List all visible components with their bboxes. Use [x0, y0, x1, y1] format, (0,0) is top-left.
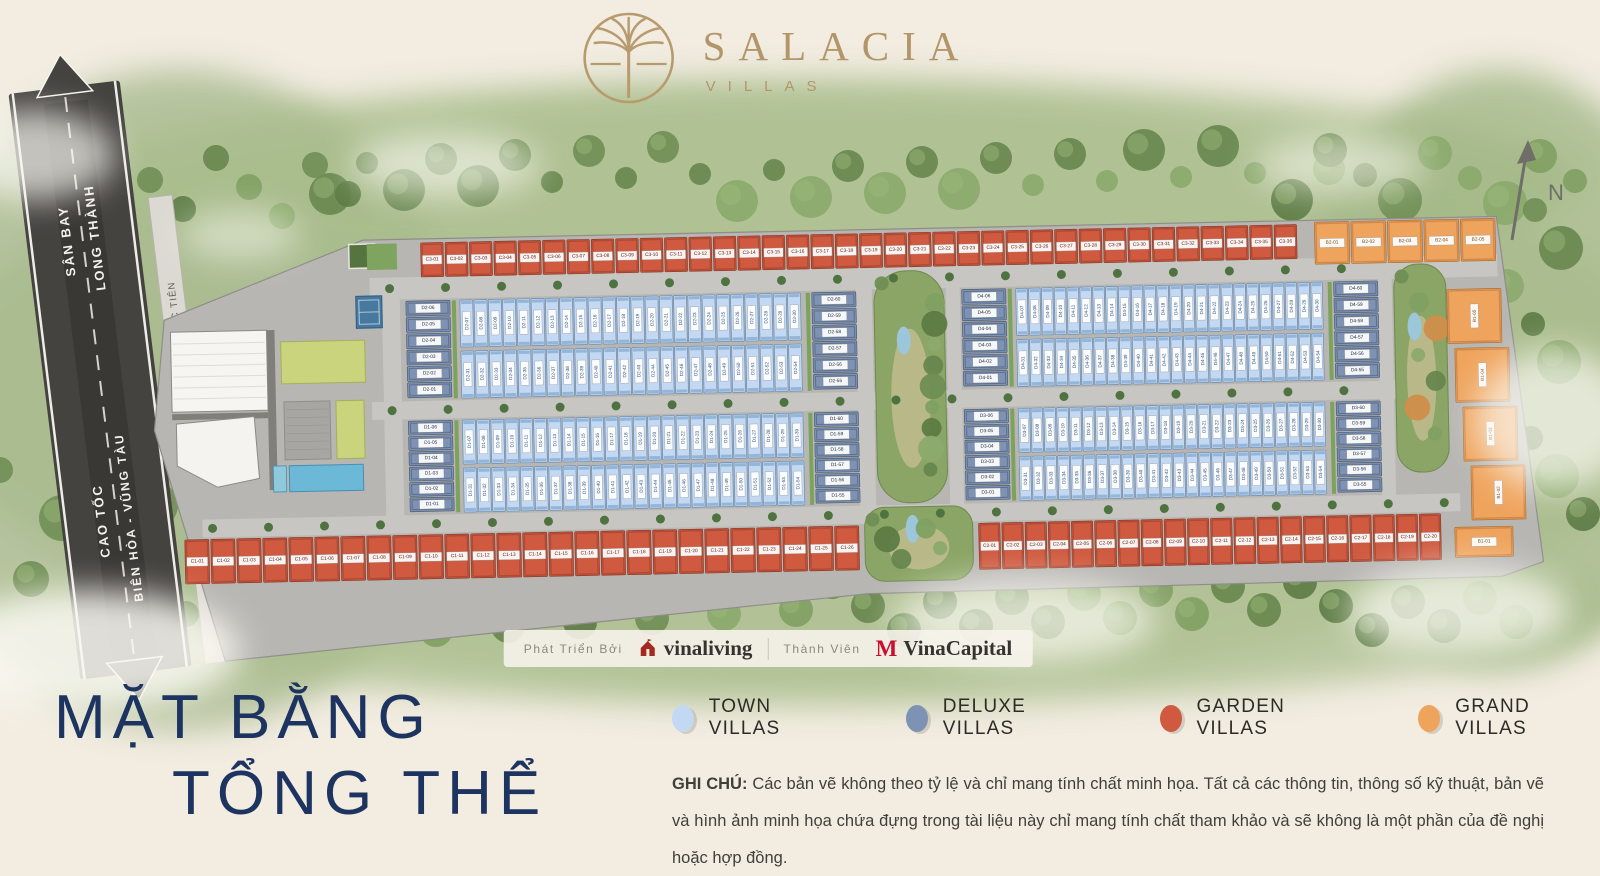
plot-D3-40: D3-40: [1135, 454, 1147, 498]
plot-label: B2-05: [1472, 236, 1485, 242]
tree: [302, 152, 328, 178]
plot-label: D1-07: [467, 435, 472, 448]
plot-label: D3-13: [1099, 422, 1104, 435]
plot-D4-05: D4-05: [962, 305, 1006, 321]
plot-label: D1-50: [738, 478, 743, 491]
map-shape: [1186, 406, 1195, 409]
map-shape: [522, 507, 533, 510]
plot-label: C2-07: [1122, 540, 1136, 546]
plot-D3-51: D3-51: [1276, 451, 1288, 495]
plot-D3-60: D3-60: [1336, 401, 1380, 416]
plot-label: D4-48: [1238, 352, 1243, 365]
plot-C1-25: C1-25: [809, 526, 834, 570]
plot-label: D4-08: [1032, 305, 1037, 318]
plot-D2-13: D2-13: [545, 298, 559, 345]
plot-D4-25: D4-25: [1247, 283, 1259, 330]
plot-label: D2-29: [778, 310, 783, 323]
plot-label: D4-44: [1187, 353, 1192, 366]
plot-label: D1-06: [424, 424, 438, 430]
map-shape: [575, 299, 586, 302]
plot-C3-33: C3-33: [1201, 226, 1224, 260]
brand-header: SALACIA VILLAS: [581, 10, 972, 106]
plot-label: D1-57: [831, 462, 845, 468]
plot-label: D1-46: [681, 479, 686, 492]
plot-D3-24: D3-24: [1236, 404, 1248, 448]
legend-item-town: TOWN VILLAS: [672, 696, 842, 740]
plot-D1-49: D1-49: [720, 462, 734, 506]
plot-label: D2-10: [507, 316, 512, 329]
plot-label: D3-01: [981, 489, 995, 495]
plot-label: C3-15: [767, 249, 781, 255]
map-shape: [533, 341, 544, 344]
map-shape: [1264, 452, 1273, 455]
plot-D1-50: D1-50: [734, 462, 748, 506]
map-shape: [475, 301, 486, 304]
map-shape: [591, 391, 602, 394]
map-shape: [1225, 405, 1234, 408]
member-label: Thành Viên: [783, 642, 860, 656]
plot-D4-42: D4-42: [1158, 336, 1170, 383]
plot-label: B2-01: [1326, 240, 1339, 246]
plot-label: D1-30: [794, 428, 799, 441]
map-shape: [1056, 339, 1065, 342]
map-shape: [706, 455, 717, 458]
map-shape: [1213, 444, 1222, 447]
map-shape: [1249, 326, 1258, 329]
map-shape: [633, 348, 644, 351]
plot-label: D1-15: [581, 433, 586, 446]
plot-D2-35: D2-35: [518, 350, 532, 397]
map-shape: [479, 469, 490, 472]
plot-label: C1-08: [373, 555, 387, 561]
plot-label: D3-33: [1048, 471, 1053, 484]
tree: [763, 159, 785, 181]
plot-C2-04: C2-04: [1048, 521, 1070, 567]
plot-C3-20: C3-20: [884, 233, 907, 267]
map-shape: [1120, 329, 1129, 332]
plot-C3-14: C3-14: [738, 236, 761, 270]
plot-label: D1-03: [425, 470, 439, 476]
map-shape: [550, 467, 561, 470]
plot-label: D2-38: [565, 366, 570, 379]
map-shape: [1071, 408, 1080, 411]
plot-label: D4-38: [1110, 354, 1115, 367]
map-shape: [1072, 456, 1081, 459]
plot-label: C1-02: [217, 558, 231, 564]
map-shape: [1030, 331, 1039, 334]
plot-label: C1-25: [815, 545, 829, 551]
plot-D4-43: D4-43: [1171, 336, 1183, 383]
tree: [137, 167, 163, 193]
plot-C3-08: C3-08: [591, 239, 614, 273]
map-shape: [747, 346, 758, 349]
plot-C3-30: C3-30: [1128, 228, 1151, 262]
map-shape: [1042, 289, 1051, 292]
plot-C1-18: C1-18: [627, 530, 652, 574]
plot-label: D2-25: [721, 311, 726, 324]
plot-label: D3-43: [1177, 468, 1182, 481]
plot-D1-32: D1-32: [478, 468, 492, 512]
plot-label: D1-44: [653, 479, 658, 492]
plot-label: C3-34: [1230, 240, 1244, 246]
map-shape: [732, 337, 743, 340]
plot-label: D2-46: [679, 363, 684, 376]
plot-label: C3-06: [547, 254, 561, 260]
map-shape: [1261, 326, 1270, 329]
map-shape: [621, 466, 632, 469]
map-shape: [1250, 404, 1259, 407]
plot-label: D1-16: [595, 433, 600, 446]
plot-label: D3-47: [1228, 467, 1233, 480]
plot-D3-41: D3-41: [1148, 454, 1160, 498]
map-shape: [690, 347, 701, 350]
map-shape: [676, 347, 687, 350]
map-shape: [1160, 406, 1169, 409]
plot-label: D4-58: [1350, 318, 1364, 324]
plot-D2-56: D2-56: [813, 357, 857, 373]
plot-D3-18: D3-18: [1159, 405, 1171, 449]
plot-label: D1-48: [710, 478, 715, 491]
map-shape: [761, 346, 772, 349]
map-shape: [1161, 445, 1170, 448]
plot-label: C3-26: [1035, 244, 1049, 250]
plot-C3-21: C3-21: [908, 232, 931, 266]
plot-label: D3-41: [1151, 469, 1156, 482]
plot-D1-59: D1-59: [815, 427, 859, 442]
map-shape: [1119, 287, 1128, 290]
plot-C1-11: C1-11: [445, 534, 470, 578]
plot-D4-24: D4-24: [1234, 284, 1246, 331]
plot-D1-53: D1-53: [777, 461, 791, 505]
plot-C3-18: C3-18: [835, 234, 858, 268]
map-shape: [1046, 457, 1055, 460]
map-shape: [722, 502, 733, 505]
plot-D4-38: D4-38: [1107, 337, 1119, 384]
map-shape: [607, 466, 618, 469]
plot-label: D3-60: [1352, 405, 1366, 411]
plot-label: D1-12: [538, 434, 543, 447]
plot-label: D4-37: [1097, 355, 1102, 368]
plot-label: D1-27: [752, 429, 757, 442]
plot-label: C3-35: [1255, 239, 1269, 245]
plot-C3-26: C3-26: [1030, 230, 1053, 264]
map-shape: [1085, 495, 1094, 498]
map-shape: [1249, 335, 1258, 338]
brand-text: SALACIA VILLAS: [703, 22, 972, 95]
map-shape: [706, 416, 717, 419]
plot-label: D3-55: [1353, 482, 1367, 488]
map-shape: [1019, 409, 1028, 412]
map-shape: [546, 299, 557, 302]
plot-C2-03: C2-03: [1025, 522, 1047, 568]
plot-label: D1-20: [652, 431, 657, 444]
plot-label: C3-27: [1060, 243, 1074, 249]
plot-B2-05: B2-05: [1460, 218, 1495, 261]
map-shape: [562, 350, 573, 353]
plot-label: C2-19: [1401, 534, 1415, 540]
plot-D1-47: D1-47: [691, 463, 705, 507]
map-shape: [721, 454, 732, 457]
plot-label: C2-17: [1354, 535, 1368, 541]
plot-C1-07: C1-07: [341, 536, 366, 580]
page-title: MẶT BẰNG TỔNG THỂ: [54, 680, 547, 831]
plot-label: C3-05: [523, 254, 537, 260]
map-shape: [479, 508, 490, 511]
map-shape: [1303, 490, 1312, 493]
plot-D4-56: D4-56: [1335, 346, 1379, 362]
plot-D4-17: D4-17: [1144, 286, 1156, 333]
map-shape: [1184, 328, 1193, 331]
map-shape: [603, 298, 614, 301]
plot-D2-10: D2-10: [503, 299, 517, 346]
plot-D2-44: D2-44: [646, 347, 660, 394]
plot-D4-39: D4-39: [1119, 337, 1131, 384]
plot-D2-21: D2-21: [659, 296, 673, 343]
plot-label: C1-15: [555, 551, 569, 557]
deluxe-swatch: [906, 705, 928, 732]
plot-label: D2-58: [828, 329, 842, 335]
plot-label: D1-26: [737, 430, 742, 443]
map-shape: [465, 508, 476, 511]
plot-D2-04: D2-04: [407, 333, 451, 349]
plot-label: D1-49: [724, 478, 729, 491]
plot-D3-06: D3-06: [964, 409, 1008, 424]
plot-C3-34: C3-34: [1225, 226, 1248, 260]
map-shape: [1068, 288, 1077, 291]
plot-label: C3-22: [938, 246, 952, 252]
map-shape: [703, 296, 714, 299]
plot-label: C3-02: [450, 256, 464, 262]
map-shape: [1020, 457, 1029, 460]
plot-label: B1-05: [1472, 309, 1477, 322]
plot-D3-02: D3-02: [966, 470, 1010, 485]
map-shape: [606, 418, 617, 421]
plot-label: D3-37: [1100, 470, 1105, 483]
plot-C1-26: C1-26: [835, 526, 860, 570]
map-shape: [1018, 331, 1027, 334]
plot-label: D3-28: [1291, 418, 1296, 431]
plot-label: C2-16: [1331, 535, 1345, 541]
map-shape: [550, 458, 561, 461]
plot-D4-41: D4-41: [1145, 337, 1157, 384]
map-shape: [1210, 327, 1219, 330]
plot-label: D4-45: [1200, 352, 1205, 365]
plot-D1-17: D1-17: [605, 417, 619, 461]
plot-D4-15: D4-15: [1118, 286, 1130, 333]
map-shape: [1055, 288, 1064, 291]
plot-label: D4-01: [979, 375, 993, 381]
plot-label: B1-01: [1478, 538, 1491, 544]
plot-D1-10: D1-10: [505, 419, 519, 463]
map-shape: [589, 298, 600, 301]
map-shape: [1071, 447, 1080, 450]
plot-D4-23: D4-23: [1221, 284, 1233, 331]
cloud: [350, 133, 540, 197]
plot-D1-54: D1-54: [791, 461, 805, 505]
map-shape: [1107, 329, 1116, 332]
plot-label: D4-41: [1149, 353, 1154, 366]
map-shape: [520, 420, 531, 423]
map-shape: [494, 507, 505, 510]
map-shape: [1098, 495, 1107, 498]
plot-D3-12: D3-12: [1082, 407, 1094, 451]
plot-label: D3-19: [1176, 420, 1181, 433]
plot-label: C3-01: [426, 256, 440, 262]
plot-D1-41: D1-41: [606, 465, 620, 509]
map-shape: [1032, 409, 1041, 412]
plot-label: D3-21: [1201, 420, 1206, 433]
map-shape: [635, 456, 646, 459]
map-shape: [547, 341, 558, 344]
map-shape: [1161, 454, 1170, 457]
legend-label: TOWN VILLAS: [709, 696, 842, 740]
map-shape: [678, 464, 689, 467]
plot-B1-05: B1-05: [1447, 288, 1502, 343]
plot-label: C1-05: [295, 556, 309, 562]
plot-D2-60: D2-60: [812, 292, 856, 308]
plot-D1-22: D1-22: [676, 415, 690, 459]
plot-label: D4-23: [1225, 301, 1230, 314]
plot-label: D3-25: [1253, 419, 1258, 432]
plot-C2-09: C2-09: [1164, 519, 1186, 565]
plot-D3-53: D3-53: [1301, 450, 1313, 494]
map-shape: [1173, 379, 1182, 382]
plot-label: D2-56: [829, 362, 843, 368]
plot-label: D2-53: [779, 361, 784, 374]
plot-D2-31: D2-31: [461, 351, 475, 398]
map-shape: [577, 391, 588, 394]
tree: [1421, 139, 1438, 156]
map-shape: [734, 415, 745, 418]
plot-D4-18: D4-18: [1157, 285, 1169, 332]
plot-label: D3-51: [1279, 466, 1284, 479]
plot-label: C1-20: [685, 548, 699, 554]
plot-D3-33: D3-33: [1045, 456, 1057, 500]
map-shape: [547, 350, 558, 353]
tree: [1127, 133, 1148, 154]
tree: [1022, 174, 1044, 196]
map-shape: [647, 348, 658, 351]
plot-label: D1-59: [830, 431, 844, 437]
plot-D3-49: D3-49: [1250, 451, 1262, 495]
plot-label: D4-31: [1020, 356, 1025, 369]
plot-D4-30: D4-30: [1311, 282, 1323, 329]
map-shape: [1313, 325, 1322, 328]
plot-label: D4-17: [1148, 302, 1153, 315]
plot-label: C1-23: [763, 546, 777, 552]
map-shape: [578, 457, 589, 460]
plot-label: D2-33: [494, 367, 499, 380]
plot-C3-15: C3-15: [762, 235, 785, 269]
plot-label: D2-43: [636, 364, 641, 377]
plot-label: D4-52: [1290, 350, 1295, 363]
plot-C1-12: C1-12: [471, 533, 496, 577]
plot-label: D2-45: [665, 364, 670, 377]
plot-C1-20: C1-20: [679, 529, 704, 573]
map-shape: [507, 459, 518, 462]
plot-label: D4-36: [1084, 355, 1089, 368]
plot-D2-22: D2-22: [674, 295, 688, 342]
map-shape: [1132, 287, 1141, 290]
plot-label: D4-50: [1264, 351, 1269, 364]
map-shape: [1136, 446, 1145, 449]
masterplan-page: SÂN BAYLONG THÀNHCAO TỐCBIÊN HÒA - VŨNG …: [0, 0, 1600, 876]
map-shape: [704, 347, 715, 350]
map-shape: [1209, 285, 1218, 288]
map-shape: [1097, 456, 1106, 459]
plot-D1-28: D1-28: [762, 414, 776, 458]
map-shape: [463, 421, 474, 424]
map-shape: [649, 417, 660, 420]
plot-D4-29: D4-29: [1298, 282, 1310, 329]
map-shape: [1121, 380, 1130, 383]
map-shape: [707, 503, 718, 506]
map-shape: [778, 462, 789, 465]
plot-C3-32: C3-32: [1177, 227, 1200, 261]
plot-C2-20: C2-20: [1419, 514, 1441, 560]
map-shape: [1060, 495, 1069, 498]
plot-label: D3-09: [1047, 423, 1052, 436]
map-shape: [507, 468, 518, 471]
plot-label: C2-13: [1261, 537, 1275, 543]
map-shape: [561, 341, 572, 344]
plot-label: D3-36: [1087, 470, 1092, 483]
plot-C3-22: C3-22: [933, 232, 956, 266]
map-shape: [1262, 335, 1271, 338]
map-shape: [1214, 492, 1223, 495]
map-shape: [464, 460, 475, 463]
plot-label: C2-08: [1145, 539, 1159, 545]
plot-D4-27: D4-27: [1272, 283, 1284, 330]
plot-label: D2-13: [550, 315, 555, 328]
plot-D2-38: D2-38: [561, 349, 575, 396]
map-shape: [735, 454, 746, 457]
map-shape: [664, 456, 675, 459]
map-shape: [618, 298, 629, 301]
plot-label: C1-14: [529, 551, 543, 557]
plot-label: C3-28: [1084, 243, 1098, 249]
plot-C1-05: C1-05: [289, 537, 314, 581]
map-shape: [1236, 336, 1245, 339]
plot-D4-37: D4-37: [1094, 338, 1106, 385]
map-shape: [1197, 337, 1206, 340]
plot-label: D3-08: [1035, 423, 1040, 436]
tree: [1250, 596, 1267, 613]
map-shape: [608, 505, 619, 508]
plot-C3-24: C3-24: [981, 231, 1004, 265]
cloud: [1255, 137, 1425, 193]
plot-label: D3-45: [1202, 468, 1207, 481]
plot-C1-17: C1-17: [601, 531, 626, 575]
map-shape: [1222, 285, 1231, 288]
plot-C3-23: C3-23: [957, 231, 980, 265]
plot-label: C2-15: [1308, 536, 1322, 542]
plot-label: C3-11: [670, 251, 683, 257]
map-shape: [622, 505, 633, 508]
plot-D3-07: D3-07: [1018, 408, 1030, 452]
map-shape: [619, 349, 630, 352]
plot-label: C2-02: [1006, 542, 1020, 548]
plot-D3-27: D3-27: [1275, 403, 1287, 447]
map-shape: [1238, 453, 1247, 456]
map-shape: [777, 414, 788, 417]
plot-label: D2-59: [828, 313, 842, 319]
map-shape: [489, 300, 500, 303]
vinaliving-name: vinaliving: [664, 636, 753, 661]
plot-D2-03: D2-03: [407, 349, 451, 365]
plot-label: C2-01: [983, 543, 997, 549]
map-shape: [607, 457, 618, 460]
